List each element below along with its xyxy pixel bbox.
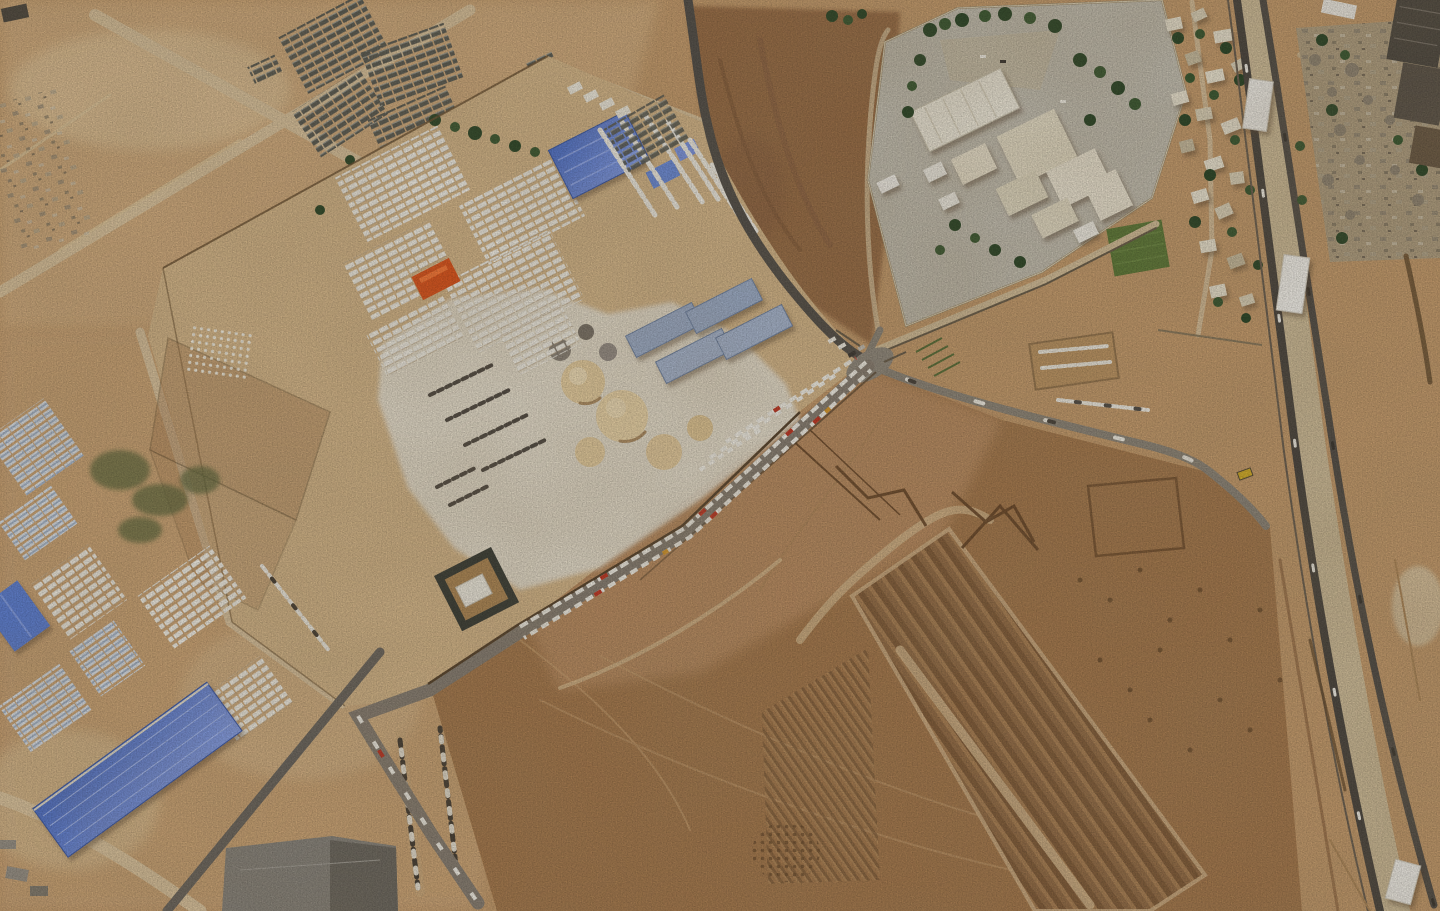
satellite-image xyxy=(0,0,1440,911)
grain-overlay xyxy=(0,0,1440,911)
satellite-canvas xyxy=(0,0,1440,911)
